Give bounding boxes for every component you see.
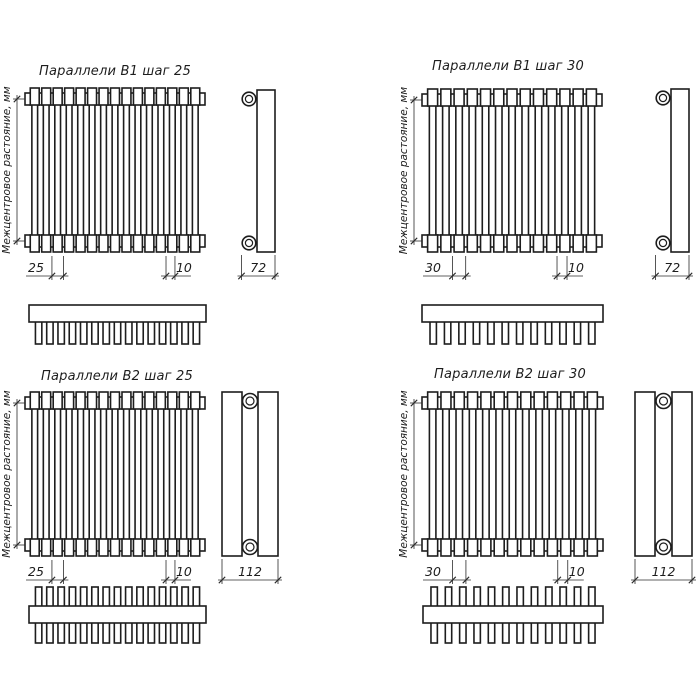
top-view-tube-front bbox=[445, 622, 451, 643]
top-view-tube-front bbox=[137, 622, 143, 643]
top-view-tube bbox=[502, 321, 508, 344]
axis-label-center-distance: Межцентровое растояние, мм bbox=[1, 86, 13, 254]
top-view-tube-front bbox=[474, 622, 480, 643]
front-tube-cap-top bbox=[441, 392, 451, 409]
dimension-label-depth: 112 bbox=[238, 564, 262, 579]
top-view bbox=[29, 587, 206, 643]
top-view-tube-front bbox=[81, 622, 87, 643]
front-tube bbox=[482, 105, 489, 236]
front-tube bbox=[469, 105, 476, 236]
front-tube-cap-top bbox=[508, 392, 518, 409]
front-tube-cap-top bbox=[99, 88, 108, 105]
front-tube-cap-bottom bbox=[534, 539, 544, 556]
dimension-label-tube-width: 10 bbox=[569, 564, 585, 579]
front-tube-cap-top bbox=[467, 89, 477, 106]
front-tube bbox=[158, 104, 164, 236]
front-tube-cap-top bbox=[145, 88, 154, 105]
front-tube-cap-top bbox=[494, 89, 504, 106]
front-tube bbox=[588, 105, 595, 236]
front-tube-cap-top bbox=[122, 88, 131, 105]
top-view-tube-front bbox=[460, 622, 466, 643]
front-tube-cap-top bbox=[53, 88, 62, 105]
dimension-label-step: 25 bbox=[28, 564, 44, 579]
axis-label-center-distance: Межцентровое растояние, мм bbox=[1, 390, 13, 558]
front-tube-cap-top bbox=[122, 392, 131, 409]
drawing-b1-step-25: Межцентровое растояние, мм251072 bbox=[1, 86, 279, 344]
front-tube-cap-bottom bbox=[88, 539, 97, 556]
front-tube-cap-bottom bbox=[481, 539, 491, 556]
front-tube bbox=[147, 408, 153, 540]
front-tube-cap-top bbox=[428, 392, 438, 409]
front-tube-cap-top bbox=[547, 89, 557, 106]
front-tube bbox=[522, 105, 529, 236]
top-view-header bbox=[29, 606, 206, 623]
dimension-label-depth: 112 bbox=[652, 564, 676, 579]
top-view-tube bbox=[459, 321, 465, 344]
side-view: 72 bbox=[238, 90, 280, 280]
front-tube bbox=[158, 408, 164, 540]
top-view-tube bbox=[193, 321, 199, 344]
top-view-tube bbox=[589, 321, 595, 344]
front-tube-cap-top bbox=[99, 392, 108, 409]
front-tube-cap-bottom bbox=[494, 539, 504, 556]
front-tube bbox=[55, 104, 61, 236]
front-tube-cap-top bbox=[586, 89, 596, 106]
top-view-header bbox=[29, 305, 206, 322]
front-tube bbox=[124, 408, 130, 540]
front-tube-cap-bottom bbox=[133, 235, 142, 252]
front-tube bbox=[589, 408, 596, 540]
front-tube-cap-bottom bbox=[122, 235, 131, 252]
front-tube-cap-top bbox=[533, 89, 543, 106]
top-view-tube bbox=[81, 321, 87, 344]
front-tube-cap-bottom bbox=[547, 235, 557, 252]
front-tube bbox=[496, 408, 503, 540]
top-view-tube-rear bbox=[193, 587, 199, 608]
front-tube-cap-bottom bbox=[111, 539, 120, 556]
front-tube-cap-bottom bbox=[521, 539, 531, 556]
pipe-connection-bottom-bore bbox=[660, 543, 668, 551]
front-tube-cap-bottom bbox=[53, 235, 62, 252]
top-view-tube-front bbox=[92, 622, 98, 643]
front-tube bbox=[496, 105, 503, 236]
top-view-tube-rear bbox=[517, 587, 523, 608]
front-tube-cap-bottom bbox=[42, 235, 51, 252]
axis-label-center-distance: Межцентровое растояние, мм bbox=[398, 87, 410, 255]
pipe-connection-bottom-bore bbox=[659, 239, 666, 246]
top-view-tube bbox=[47, 321, 53, 344]
top-view-tube bbox=[35, 321, 41, 344]
front-tube-cap-top bbox=[561, 392, 571, 409]
front-tube-cap-bottom bbox=[467, 235, 477, 252]
front-tube bbox=[549, 408, 556, 540]
front-tube-cap-top bbox=[441, 89, 451, 106]
top-view bbox=[29, 305, 206, 344]
top-view-tube-front bbox=[589, 622, 595, 643]
front-tube-cap-bottom bbox=[99, 539, 108, 556]
front-tube-cap-bottom bbox=[520, 235, 530, 252]
front-tube-cap-bottom bbox=[156, 539, 165, 556]
drawing-sheet: Межцентровое растояние, мм251072Межцентр… bbox=[0, 0, 700, 700]
top-view-tube-rear bbox=[531, 587, 537, 608]
front-tube-cap-bottom bbox=[468, 539, 478, 556]
top-view-tube bbox=[517, 321, 523, 344]
top-view-tube-front bbox=[171, 622, 177, 643]
front-tube-cap-bottom bbox=[587, 539, 597, 556]
front-tube-cap-bottom bbox=[428, 235, 438, 252]
drawing-title-b1-step25: Параллели В1 шаг 25 bbox=[39, 64, 191, 79]
front-tube-cap-bottom bbox=[533, 235, 543, 252]
front-tube bbox=[43, 408, 49, 540]
front-tube-cap-top bbox=[573, 89, 583, 106]
pipe-connection-bottom-bore bbox=[246, 543, 254, 551]
front-tube-cap-top bbox=[65, 392, 74, 409]
top-view-tube bbox=[531, 321, 537, 344]
front-tube-cap-top bbox=[42, 392, 51, 409]
front-tube-cap-top bbox=[42, 88, 51, 105]
front-tube-cap-bottom bbox=[560, 235, 570, 252]
front-tube-cap-bottom bbox=[441, 539, 451, 556]
front-tube-cap-top bbox=[428, 89, 438, 106]
drawing-title-b2-step25: Параллели В2 шаг 25 bbox=[41, 369, 193, 384]
side-body-front-row bbox=[222, 392, 242, 556]
front-tube-cap-bottom bbox=[122, 539, 131, 556]
front-tube-cap-top bbox=[534, 392, 544, 409]
front-tube-cap-bottom bbox=[30, 235, 39, 252]
front-view: Межцентровое растояние, мм3010 bbox=[398, 390, 603, 584]
top-view-tube-rear bbox=[589, 587, 595, 608]
side-view: 72 bbox=[652, 89, 694, 280]
top-view-tube-rear bbox=[126, 587, 132, 608]
front-tube bbox=[66, 104, 72, 236]
dimension-label-depth: 72 bbox=[664, 260, 680, 275]
front-tube-cap-top bbox=[168, 88, 177, 105]
front-tube bbox=[562, 105, 569, 236]
top-view-tube bbox=[574, 321, 580, 344]
top-view-tube-front bbox=[47, 622, 53, 643]
front-tube bbox=[147, 104, 153, 236]
front-tube-cap-top bbox=[481, 392, 491, 409]
dimension-label-tube-width: 10 bbox=[176, 564, 192, 579]
top-view-header bbox=[423, 606, 603, 623]
front-tube-cap-bottom bbox=[133, 539, 142, 556]
top-view-header bbox=[422, 305, 603, 322]
top-view-tube-front bbox=[114, 622, 120, 643]
front-tube-cap-top bbox=[494, 392, 504, 409]
side-body bbox=[257, 90, 275, 252]
top-view-tube-rear bbox=[431, 587, 437, 608]
top-view-tube bbox=[182, 321, 188, 344]
top-view-tube-front bbox=[431, 622, 437, 643]
top-view-tube bbox=[58, 321, 64, 344]
front-tube-cap-top bbox=[191, 88, 200, 105]
front-tube bbox=[112, 408, 118, 540]
front-tube-cap-top bbox=[521, 392, 531, 409]
front-tube-cap-bottom bbox=[168, 539, 177, 556]
top-view-tube-rear bbox=[460, 587, 466, 608]
front-tube bbox=[576, 408, 583, 540]
top-view bbox=[422, 305, 603, 344]
technical-drawing-canvas: Межцентровое растояние, мм251072Межцентр… bbox=[0, 0, 700, 700]
side-view: 112 bbox=[218, 392, 282, 584]
front-tube-cap-bottom bbox=[88, 235, 97, 252]
front-tube-cap-bottom bbox=[111, 235, 120, 252]
top-view bbox=[423, 587, 603, 643]
top-view-tube-front bbox=[58, 622, 64, 643]
front-tube-cap-bottom bbox=[76, 235, 85, 252]
front-tube bbox=[32, 104, 38, 236]
front-tube bbox=[89, 408, 95, 540]
top-view-tube-rear bbox=[159, 587, 165, 608]
top-view-tube-rear bbox=[69, 587, 75, 608]
front-tube-cap-top bbox=[88, 392, 97, 409]
top-view-tube-front bbox=[159, 622, 165, 643]
top-view-tube-rear bbox=[488, 587, 494, 608]
top-view-tube bbox=[488, 321, 494, 344]
top-view-tube bbox=[92, 321, 98, 344]
front-tube-cap-top bbox=[560, 89, 570, 106]
top-view-tube-rear bbox=[35, 587, 41, 608]
top-view-tube-rear bbox=[546, 587, 552, 608]
top-view-tube bbox=[444, 321, 450, 344]
pipe-connection-top-bore bbox=[245, 95, 252, 102]
front-tube-cap-bottom bbox=[65, 539, 74, 556]
front-view: Межцентровое растояние, мм2510 bbox=[1, 86, 205, 280]
front-tube-cap-bottom bbox=[428, 539, 438, 556]
top-view-tube-rear bbox=[560, 587, 566, 608]
front-tube bbox=[575, 105, 582, 236]
top-view-tube-front bbox=[517, 622, 523, 643]
front-tube-cap-bottom bbox=[42, 539, 51, 556]
front-tube-cap-bottom bbox=[191, 235, 200, 252]
front-tube-cap-bottom bbox=[76, 539, 85, 556]
front-tube bbox=[509, 408, 516, 540]
top-view-tube-rear bbox=[137, 587, 143, 608]
top-view-tube bbox=[114, 321, 120, 344]
front-tube bbox=[192, 104, 198, 236]
drawing-b2-step-30: Межцентровое растояние, мм3010112 bbox=[398, 390, 696, 643]
front-tube-cap-bottom bbox=[191, 539, 200, 556]
top-view-tube-rear bbox=[503, 587, 509, 608]
front-tube-cap-bottom bbox=[547, 539, 557, 556]
top-view-tube bbox=[545, 321, 551, 344]
front-tube bbox=[169, 408, 175, 540]
dimension-label-step: 25 bbox=[28, 260, 44, 275]
top-view-tube-rear bbox=[114, 587, 120, 608]
top-view-tube-rear bbox=[81, 587, 87, 608]
top-view-tube-front bbox=[182, 622, 188, 643]
top-view-tube-rear bbox=[148, 587, 154, 608]
front-tube-cap-bottom bbox=[494, 235, 504, 252]
pipe-connection-top-bore bbox=[246, 397, 254, 405]
front-tube bbox=[89, 104, 95, 236]
front-tube bbox=[562, 408, 569, 540]
front-tube bbox=[456, 408, 463, 540]
top-view-tube bbox=[103, 321, 109, 344]
front-tube bbox=[135, 408, 141, 540]
front-tube bbox=[169, 104, 175, 236]
pipe-connection-top-bore bbox=[660, 397, 668, 405]
side-body-front-row bbox=[635, 392, 655, 556]
front-tube-cap-top bbox=[520, 89, 530, 106]
side-view: 112 bbox=[631, 392, 696, 584]
front-tube-cap-bottom bbox=[145, 539, 154, 556]
top-view-tube-rear bbox=[574, 587, 580, 608]
side-body bbox=[671, 89, 689, 252]
top-view-tube-front bbox=[560, 622, 566, 643]
top-view-tube-front bbox=[546, 622, 552, 643]
front-tube bbox=[32, 408, 38, 540]
drawing-title-b1-step30: Параллели В1 шаг 30 bbox=[432, 59, 584, 74]
front-tube bbox=[443, 105, 450, 236]
front-tube bbox=[101, 408, 107, 540]
front-tube-cap-top bbox=[30, 88, 39, 105]
front-tube-cap-bottom bbox=[30, 539, 39, 556]
front-tube bbox=[66, 408, 72, 540]
top-view-tube-rear bbox=[103, 587, 109, 608]
front-tube-cap-bottom bbox=[574, 539, 584, 556]
top-view-tube bbox=[430, 321, 436, 344]
front-tube bbox=[548, 105, 555, 236]
front-tube-cap-bottom bbox=[454, 539, 464, 556]
front-tube-cap-top bbox=[53, 392, 62, 409]
front-tube bbox=[483, 408, 490, 540]
front-tube-cap-top bbox=[587, 392, 597, 409]
front-tube-cap-top bbox=[76, 392, 85, 409]
drawing-b2-step-25: Межцентровое растояние, мм2510112 bbox=[1, 390, 282, 643]
front-tube bbox=[135, 104, 141, 236]
front-tube-cap-top bbox=[481, 89, 491, 106]
dimension-label-depth: 72 bbox=[250, 260, 266, 275]
front-tube-cap-top bbox=[65, 88, 74, 105]
top-view-tube bbox=[473, 321, 479, 344]
front-tube-cap-top bbox=[507, 89, 517, 106]
front-tube-cap-bottom bbox=[573, 235, 583, 252]
front-tube-cap-top bbox=[454, 89, 464, 106]
top-view-tube-front bbox=[148, 622, 154, 643]
top-view-tube-front bbox=[503, 622, 509, 643]
front-tube bbox=[429, 408, 436, 540]
front-tube bbox=[112, 104, 118, 236]
top-view-tube bbox=[171, 321, 177, 344]
top-view-tube-front bbox=[69, 622, 75, 643]
front-tube-cap-top bbox=[454, 392, 464, 409]
top-view-tube-rear bbox=[47, 587, 53, 608]
top-view-tube-front bbox=[193, 622, 199, 643]
dimension-label-step: 30 bbox=[425, 260, 441, 275]
front-tube bbox=[101, 104, 107, 236]
dimension-label-tube-width: 10 bbox=[176, 260, 192, 275]
front-tube-cap-bottom bbox=[99, 235, 108, 252]
top-view-tube-front bbox=[531, 622, 537, 643]
front-tube bbox=[469, 408, 476, 540]
dimension-label-tube-width: 10 bbox=[568, 260, 584, 275]
top-view-tube bbox=[126, 321, 132, 344]
top-view-tube-rear bbox=[92, 587, 98, 608]
top-view-tube-front bbox=[103, 622, 109, 643]
top-view-tube-rear bbox=[182, 587, 188, 608]
front-tube bbox=[523, 408, 530, 540]
dimension-label-step: 30 bbox=[425, 564, 441, 579]
top-view-tube-rear bbox=[171, 587, 177, 608]
front-tube bbox=[78, 408, 84, 540]
front-tube bbox=[443, 408, 450, 540]
front-tube bbox=[55, 408, 61, 540]
front-tube bbox=[78, 104, 84, 236]
top-view-tube bbox=[148, 321, 154, 344]
front-tube-cap-top bbox=[547, 392, 557, 409]
front-tube-cap-top bbox=[191, 392, 200, 409]
front-tube-cap-top bbox=[179, 392, 188, 409]
top-view-tube-rear bbox=[474, 587, 480, 608]
front-tube-cap-top bbox=[88, 88, 97, 105]
top-view-tube bbox=[560, 321, 566, 344]
front-tube-cap-top bbox=[168, 392, 177, 409]
front-tube-cap-bottom bbox=[508, 539, 518, 556]
axis-label-center-distance: Межцентровое растояние, мм bbox=[398, 390, 410, 558]
front-tube-cap-bottom bbox=[145, 235, 154, 252]
front-tube-cap-top bbox=[133, 88, 142, 105]
front-tube-cap-bottom bbox=[156, 235, 165, 252]
top-view-tube bbox=[69, 321, 75, 344]
front-view: Межцентровое растояние, мм2510 bbox=[1, 390, 205, 584]
front-tube bbox=[535, 105, 542, 236]
top-view-tube-front bbox=[574, 622, 580, 643]
front-tube-cap-bottom bbox=[53, 539, 62, 556]
front-tube-cap-bottom bbox=[507, 235, 517, 252]
drawing-b1-step-30: Межцентровое растояние, мм301072 bbox=[398, 87, 693, 344]
front-tube-cap-bottom bbox=[561, 539, 571, 556]
front-tube-cap-top bbox=[179, 88, 188, 105]
front-tube-cap-top bbox=[156, 392, 165, 409]
front-tube bbox=[536, 408, 543, 540]
side-body-rear-row bbox=[672, 392, 692, 556]
front-tube-cap-top bbox=[574, 392, 584, 409]
front-tube-cap-top bbox=[30, 392, 39, 409]
top-view-tube-rear bbox=[58, 587, 64, 608]
front-tube-cap-bottom bbox=[481, 235, 491, 252]
front-view: Межцентровое растояние, мм3010 bbox=[398, 87, 602, 280]
front-tube-cap-top bbox=[145, 392, 154, 409]
front-tube-cap-bottom bbox=[179, 235, 188, 252]
front-tube-cap-bottom bbox=[168, 235, 177, 252]
front-tube bbox=[509, 105, 516, 236]
front-tube-cap-bottom bbox=[441, 235, 451, 252]
front-tube-cap-top bbox=[111, 392, 120, 409]
front-tube bbox=[124, 104, 130, 236]
front-tube-cap-top bbox=[133, 392, 142, 409]
side-body-rear-row bbox=[258, 392, 278, 556]
front-tube-cap-bottom bbox=[586, 235, 596, 252]
top-view-tube bbox=[159, 321, 165, 344]
drawing-title-b2-step30: Параллели В2 шаг 30 bbox=[434, 367, 586, 382]
front-tube bbox=[181, 104, 187, 236]
front-tube-cap-top bbox=[111, 88, 120, 105]
top-view-tube-front bbox=[488, 622, 494, 643]
front-tube-cap-bottom bbox=[179, 539, 188, 556]
front-tube bbox=[181, 408, 187, 540]
front-tube-cap-bottom bbox=[65, 235, 74, 252]
front-tube-cap-top bbox=[156, 88, 165, 105]
front-tube-cap-top bbox=[76, 88, 85, 105]
top-view-tube bbox=[137, 321, 143, 344]
front-tube bbox=[192, 408, 198, 540]
front-tube bbox=[456, 105, 463, 236]
front-tube-cap-top bbox=[468, 392, 478, 409]
front-tube bbox=[43, 104, 49, 236]
front-tube bbox=[429, 105, 436, 236]
front-tube-cap-bottom bbox=[454, 235, 464, 252]
